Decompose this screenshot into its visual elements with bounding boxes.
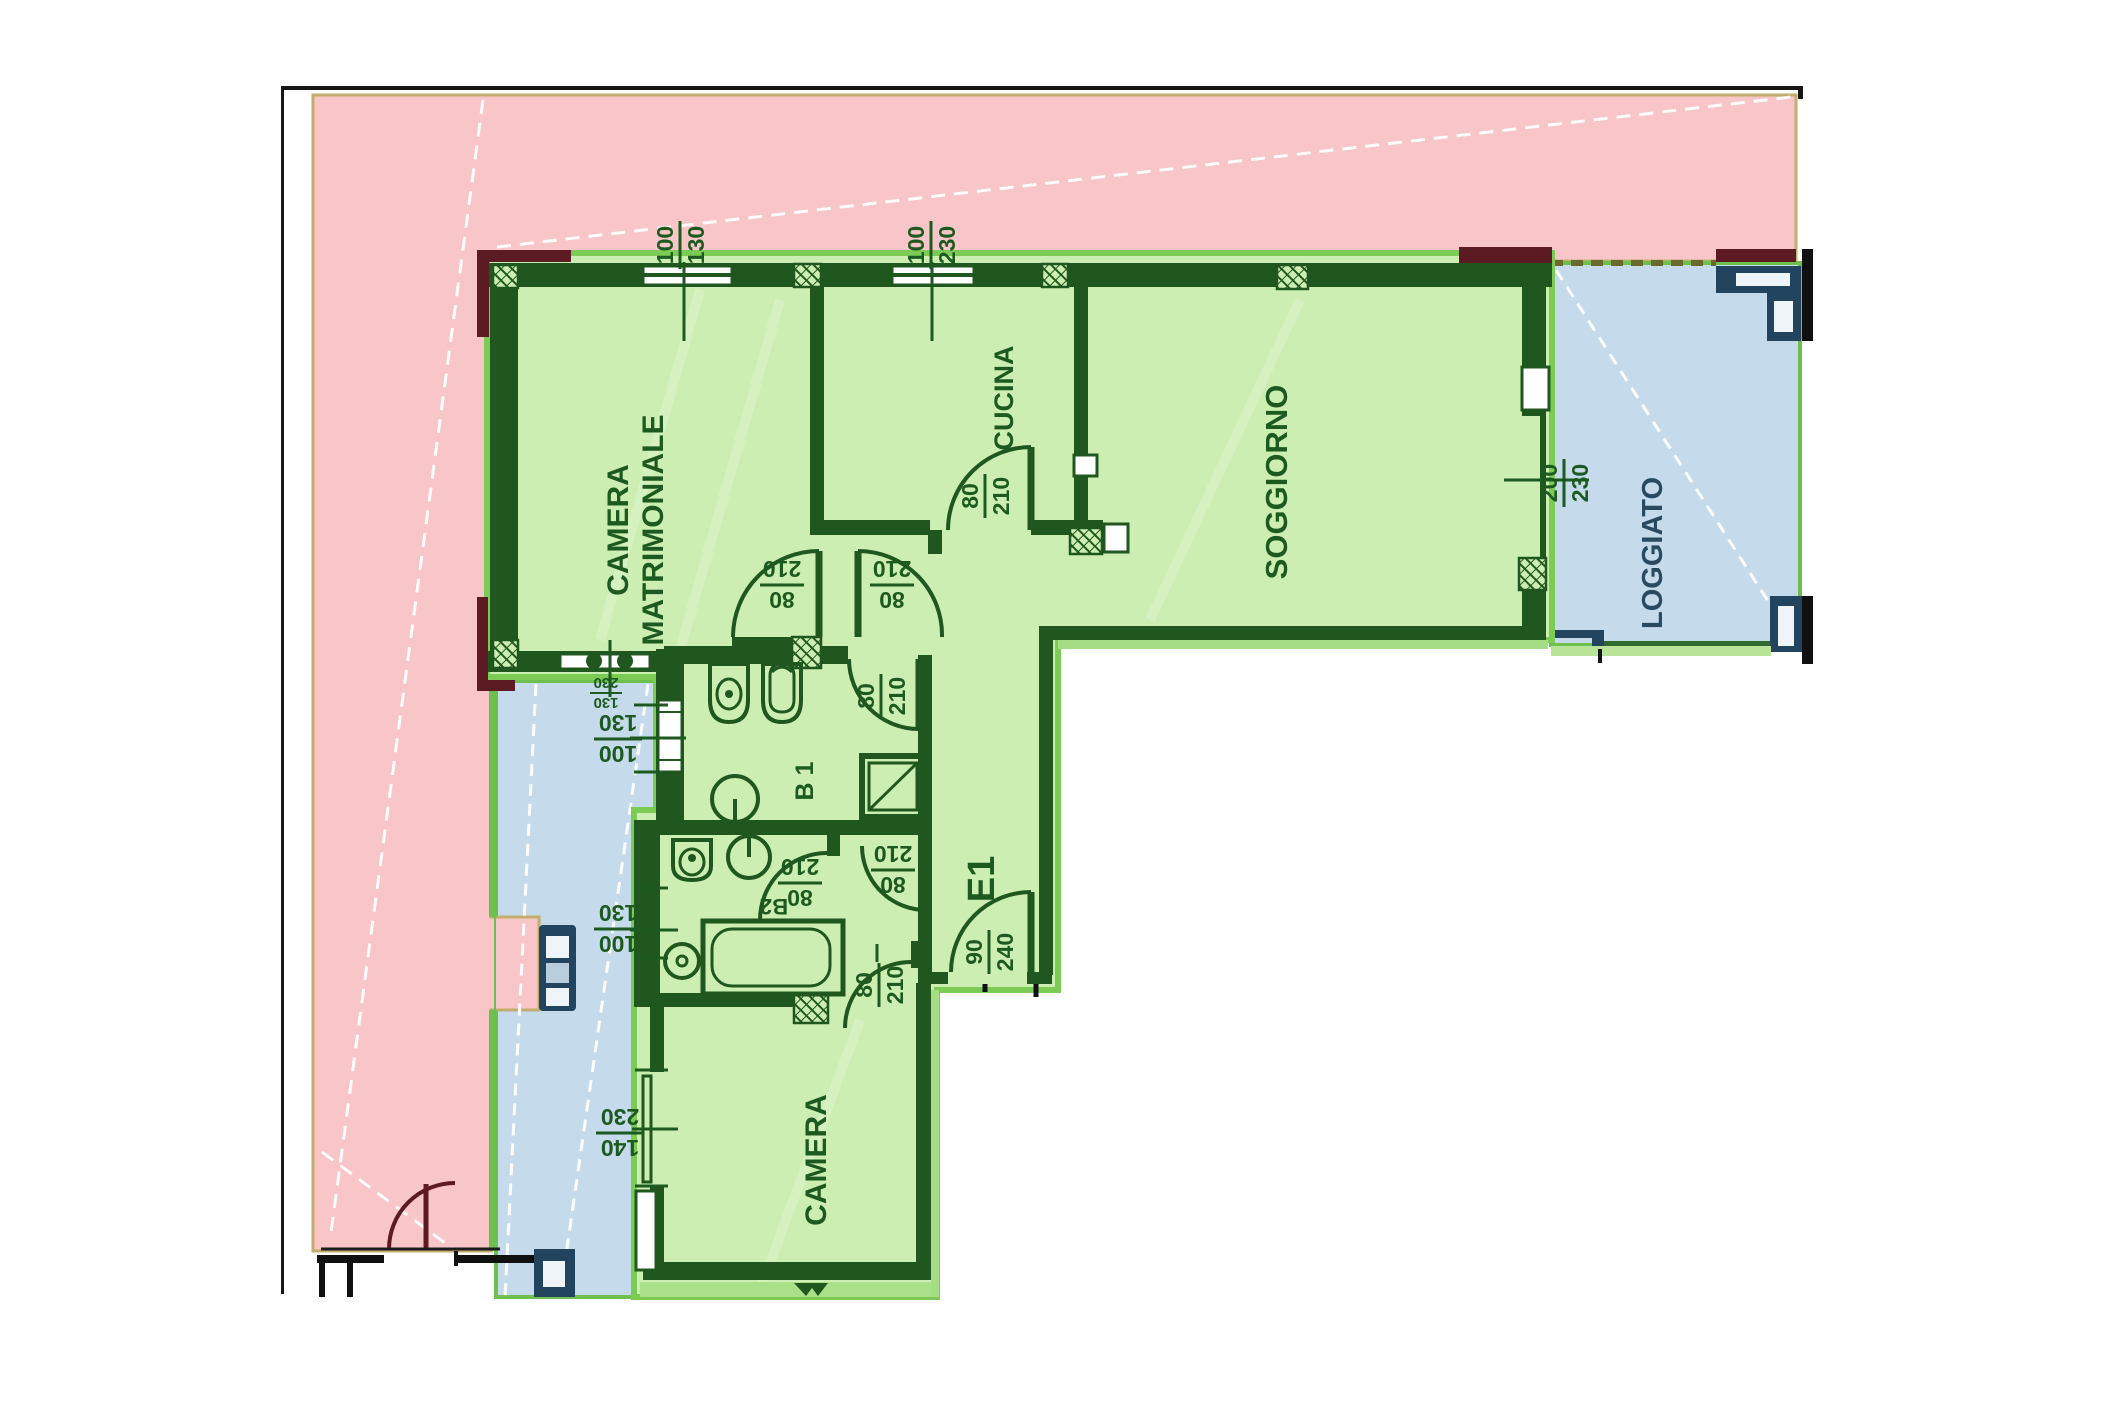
svg-text:130: 130 [593,694,618,711]
svg-text:80: 80 [787,885,813,911]
svg-text:130: 130 [683,226,709,264]
svg-text:130: 130 [599,900,637,926]
svg-text:100: 100 [599,931,637,957]
svg-text:210: 210 [874,841,912,867]
svg-text:230: 230 [1567,464,1593,502]
svg-text:130: 130 [599,710,637,736]
svg-text:90: 90 [961,939,987,965]
svg-text:CUCINA: CUCINA [989,346,1019,451]
svg-text:230: 230 [934,226,960,264]
svg-text:210: 210 [988,477,1014,515]
svg-text:210: 210 [882,966,908,1004]
svg-text:MATRIMONIALE: MATRIMONIALE [637,414,670,645]
svg-text:CAMERA: CAMERA [800,1094,833,1226]
svg-text:230: 230 [601,1104,639,1130]
svg-text:80: 80 [879,587,905,613]
svg-text:210: 210 [884,677,910,715]
svg-text:240: 240 [992,933,1018,971]
svg-text:100: 100 [652,226,678,264]
svg-text:210: 210 [763,556,801,582]
svg-text:80: 80 [880,872,906,898]
svg-text:CAMERA: CAMERA [602,464,635,596]
svg-text:SOGGIORNO: SOGGIORNO [1259,385,1294,580]
svg-text:80: 80 [851,972,877,998]
svg-text:210: 210 [873,556,911,582]
svg-text:140: 140 [601,1135,639,1161]
svg-text:230: 230 [593,674,618,691]
svg-text:210: 210 [781,854,819,880]
svg-text:200: 200 [1536,464,1562,502]
svg-text:100: 100 [599,741,637,767]
svg-text:E1: E1 [961,856,1003,902]
svg-text:B2: B2 [760,894,788,919]
svg-text:LOGGIATO: LOGGIATO [1637,477,1669,629]
svg-text:80: 80 [957,483,983,509]
svg-text:80: 80 [769,587,795,613]
svg-text:80: 80 [853,683,879,709]
svg-text:B 1: B 1 [791,761,819,800]
svg-text:100: 100 [903,226,929,264]
